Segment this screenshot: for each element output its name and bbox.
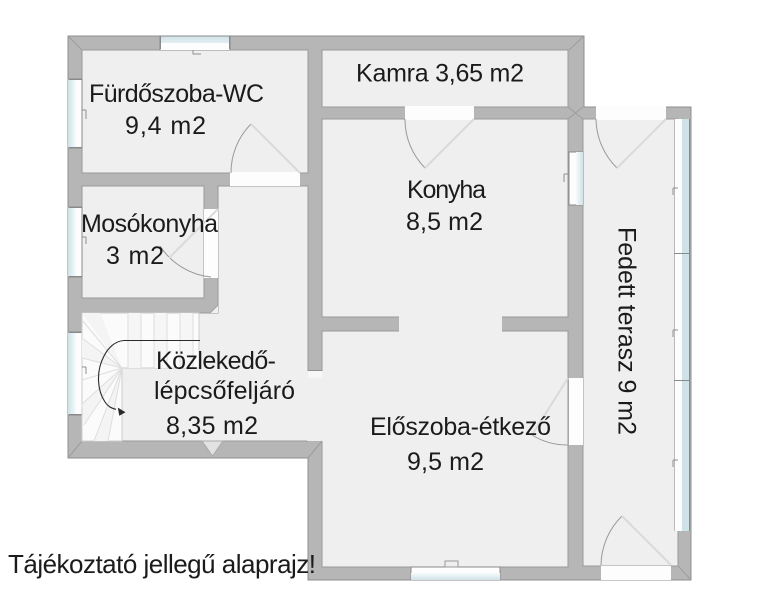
svg-text:9,4 m2: 9,4 m2 xyxy=(125,112,206,140)
svg-text:lépcsőfeljáró: lépcsőfeljáró xyxy=(154,377,295,405)
svg-text:8,35 m2: 8,35 m2 xyxy=(166,412,258,440)
svg-text:9,5 m2: 9,5 m2 xyxy=(407,448,484,476)
svg-text:Előszoba-étkező: Előszoba-étkező xyxy=(370,413,551,441)
svg-text:Kamra 3,65 m2: Kamra 3,65 m2 xyxy=(356,60,524,88)
svg-text:Konyha: Konyha xyxy=(407,176,486,204)
svg-text:Fürdőszoba-WC: Fürdőszoba-WC xyxy=(89,80,264,108)
svg-text:8,5 m2: 8,5 m2 xyxy=(406,208,483,236)
svg-text:3 m2: 3 m2 xyxy=(106,242,164,270)
svg-text:Fedett terasz 9 m2: Fedett terasz 9 m2 xyxy=(613,227,641,435)
svg-text:Közlekedő-: Közlekedő- xyxy=(156,347,276,375)
svg-text:Tájékoztató jellegű alaprajz!: Tájékoztató jellegű alaprajz! xyxy=(8,549,316,579)
svg-text:Mosókonyha: Mosókonyha xyxy=(81,210,218,238)
